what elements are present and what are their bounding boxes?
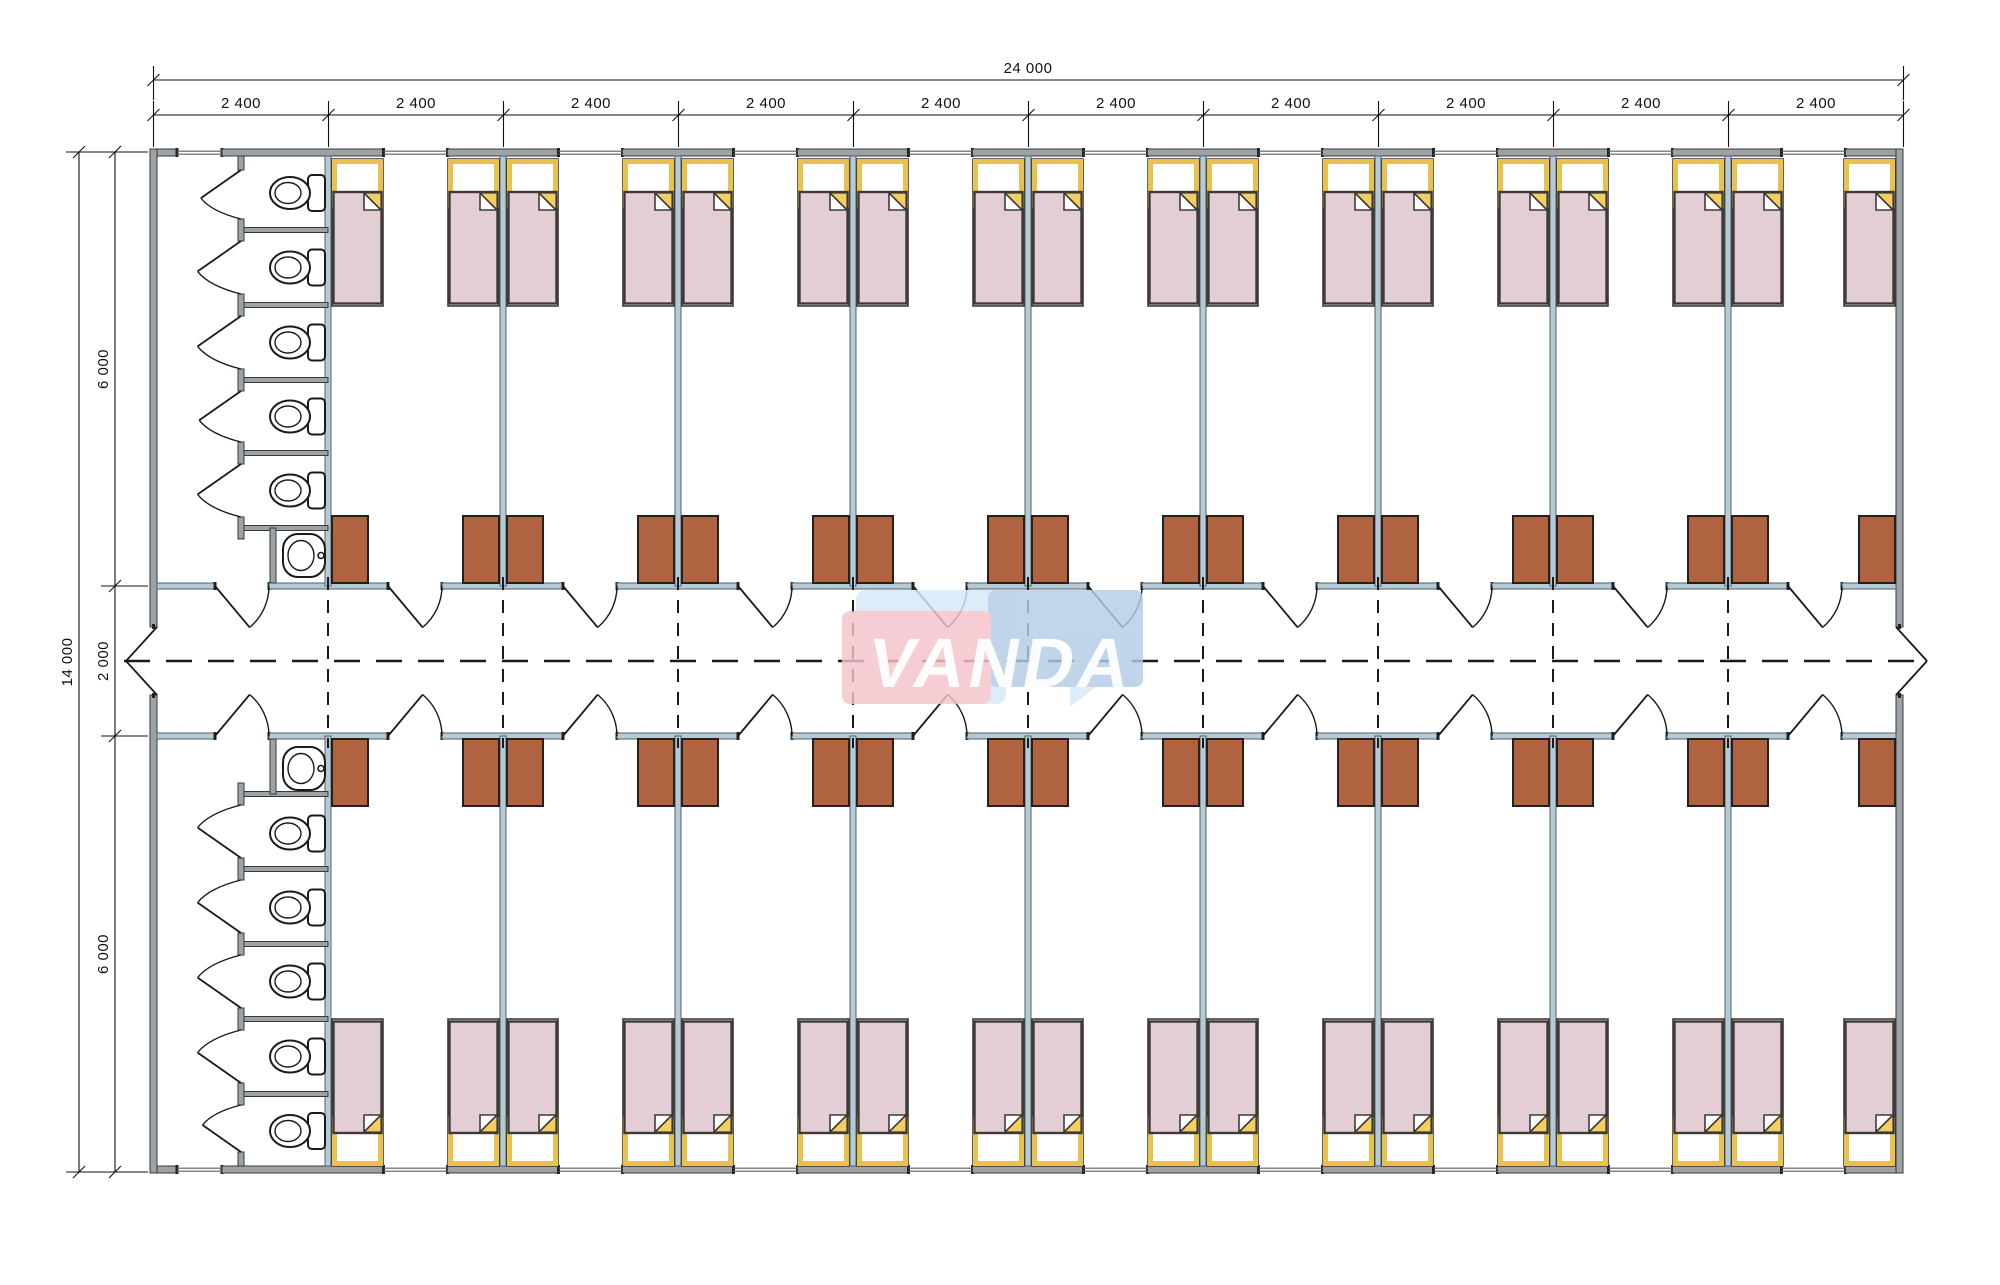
wardrobe [1688,516,1724,583]
wardrobe [463,516,499,583]
door-leaf [198,978,241,1008]
wardrobe [1859,516,1895,583]
wardrobe [1557,516,1593,583]
stall-wall [238,1083,244,1105]
door-leaf [198,464,241,494]
door-swing-arc [198,955,241,978]
door-jamb-cap [557,148,560,157]
door-leaf [198,1053,241,1083]
partition-wall [1550,736,1556,1166]
door-leaf [388,586,423,627]
bed-icon [857,1019,908,1166]
entrance-door-leaf [126,627,157,661]
wall [623,1166,734,1173]
door-jamb-cap [1257,148,1260,157]
wardrobe [1207,516,1243,583]
partition-wall [1550,156,1556,586]
stall-wall [240,526,328,531]
door-jamb-cap [1898,693,1901,698]
wardrobe [1859,739,1895,806]
entrance-door-leaf [1896,627,1927,661]
door-swing-arc [1648,695,1667,736]
wall [1498,1166,1609,1173]
toilet-icon [270,175,325,211]
bed-icon [507,159,558,306]
wall [1846,149,1904,156]
wardrobe [1382,739,1418,806]
wardrobe [682,516,718,583]
wall [798,149,909,156]
dimension-label: 2 400 [1271,95,1311,112]
stall-wall [238,219,244,241]
dimension-label: 2 400 [1796,95,1836,112]
door-jamb-cap [1082,148,1085,157]
toilet-bowl [270,1041,310,1073]
door-leaf [198,828,241,858]
door-swing-arc [198,346,241,369]
dormitory-floor-plan: VANDA24 0002 4002 4002 4002 4002 4002 40… [0,0,2000,1285]
partition-wall [1725,156,1731,586]
door-swing-arc [598,586,617,627]
bed-icon [1148,1019,1199,1166]
wall [157,733,215,739]
wardrobe [1338,739,1374,806]
wall [1673,1166,1782,1173]
door-leaf [215,586,250,627]
toilet-bowl [270,252,310,284]
toilet-bowl [270,966,310,998]
stall-wall [240,792,328,797]
dimension-label: 2 400 [396,95,436,112]
partition-wall [1200,736,1206,1166]
dimension-label: 2 400 [1446,95,1486,112]
door-swing-arc [198,805,241,828]
door-leaf [563,586,598,627]
door-jamb-cap [1607,148,1610,157]
door-swing-arc [1298,695,1317,736]
bed-icon [1673,159,1724,306]
door-swing-arc [203,1105,241,1125]
wardrobe [1382,516,1418,583]
wardrobe [1032,516,1068,583]
wardrobe [1513,739,1549,806]
entrance-door-leaf [126,661,157,695]
stall-wall [270,739,276,794]
bed-icon [448,1019,499,1166]
vanda-watermark: VANDA [842,590,1143,707]
wardrobe [988,739,1024,806]
wardrobe [1688,739,1724,806]
wardrobe [1732,516,1768,583]
door-jamb-cap [907,148,910,157]
door-jamb-cap [732,148,735,157]
sink-tap [318,553,324,559]
dimension-label: 2 400 [1096,95,1136,112]
door-swing-arc [198,1030,241,1053]
stall-wall [240,228,328,233]
wardrobe [813,516,849,583]
door-swing-arc [198,271,241,294]
bed-icon [1673,1019,1724,1166]
toilet-bowl [270,401,310,433]
toilet-bowl [270,892,310,924]
sink-icon [283,534,325,577]
stall-wall [238,156,244,170]
bed-icon [973,1019,1024,1166]
toilet-icon [270,890,325,926]
wardrobe [332,739,368,806]
door-swing-arc [773,586,792,627]
wardrobe [1513,516,1549,583]
door-jamb-cap [176,1165,179,1174]
door-swing-arc [1473,586,1492,627]
toilet-icon [270,964,325,1000]
bed-icon [798,159,849,306]
wardrobe [638,516,674,583]
door-leaf [203,1125,241,1152]
partition-wall [325,156,331,586]
wall [1673,149,1782,156]
door-swing-arc [1823,586,1842,627]
dimension-label: 2 400 [746,95,786,112]
wall [222,1166,384,1173]
door-swing-arc [423,695,442,736]
stall-wall [238,294,244,316]
stall-wall [240,867,328,872]
door-leaf [198,903,241,933]
stall-wall [240,451,328,456]
door-leaf [198,316,241,346]
door-swing-arc [250,586,269,627]
toilet-bowl [270,327,310,359]
dimension-label: 2 400 [1621,95,1661,112]
bed-icon [1732,1019,1783,1166]
bed-icon [798,1019,849,1166]
door-jamb-cap [176,148,179,157]
door-swing-arc [1298,586,1317,627]
door-leaf [738,586,773,627]
bed-icon [1557,159,1608,306]
door-swing-arc [198,880,241,903]
bed-icon [682,1019,733,1166]
toilet-bowl [270,818,310,850]
wall [973,149,1084,156]
bed-icon [1498,159,1549,306]
stall-wall [240,378,328,383]
wall [1323,1166,1434,1173]
wall [798,1166,909,1173]
door-leaf [563,695,598,736]
wardrobe [638,739,674,806]
door-jamb-cap [1780,148,1783,157]
door-swing-arc [201,198,241,219]
wardrobe [332,516,368,583]
door-leaf [215,695,250,736]
wall [1148,1166,1259,1173]
wall [1846,1166,1904,1173]
wall [222,149,384,156]
stall-wall [240,303,328,308]
door-swing-arc [1473,695,1492,736]
stall-wall [238,517,244,539]
door-leaf [388,695,423,736]
dimension-label: 24 000 [1004,60,1053,77]
door-leaf [1788,586,1823,627]
dimension-label: 6 000 [95,349,112,389]
bed-icon [1323,159,1374,306]
dimension-label: 2 000 [95,641,112,681]
bed-icon [332,159,383,306]
wall [448,1166,559,1173]
door-jamb-cap [152,693,155,698]
partition-wall [1025,736,1031,1166]
wardrobe [1207,739,1243,806]
door-leaf [1438,586,1473,627]
stall-wall [270,528,276,583]
wardrobe [813,739,849,806]
wardrobe [1163,739,1199,806]
wall [1323,149,1434,156]
wall [1896,695,1903,1173]
bed-icon [1382,159,1433,306]
bed-icon [1207,1019,1258,1166]
bed-icon [1498,1019,1549,1166]
door-leaf [199,391,241,420]
wall [973,1166,1084,1173]
door-leaf [1263,695,1298,736]
partition-wall [675,736,681,1166]
bed-icon [1557,1019,1608,1166]
toilet-bowl [270,1115,310,1147]
door-jamb-cap [1432,148,1435,157]
partition-wall [1375,736,1381,1166]
wall [150,695,157,1173]
wall [150,149,157,627]
stall-wall [238,783,244,805]
wardrobe [857,739,893,806]
wardrobe [1338,516,1374,583]
watermark-text: VANDA [863,623,1140,701]
wardrobe [507,516,543,583]
dimension-label: 2 400 [571,95,611,112]
stall-wall [238,933,244,955]
door-leaf [1788,695,1823,736]
wardrobe [1163,516,1199,583]
partition-wall [1025,156,1031,586]
wall [1498,149,1609,156]
stall-wall [238,858,244,880]
stall-wall [240,942,328,947]
door-swing-arc [598,695,617,736]
wardrobe [1032,739,1068,806]
wall [623,149,734,156]
bed-icon [448,159,499,306]
door-leaf [1613,695,1648,736]
bed-icon [623,159,674,306]
sink-tap [318,766,324,772]
bed-icon [1844,1019,1895,1166]
partition-wall [850,736,856,1166]
stall-wall [240,1017,328,1022]
toilet-icon [270,1039,325,1075]
partition-wall [1375,156,1381,586]
toilet-icon [270,250,325,286]
wall [1896,149,1903,627]
dimension-label: 2 400 [221,95,261,112]
wardrobe [988,516,1024,583]
door-swing-arc [198,494,241,517]
bed-icon [1032,1019,1083,1166]
wardrobe [682,739,718,806]
wall [157,583,215,589]
bed-icon [1844,159,1895,306]
sink-icon [283,747,325,790]
partition-wall [325,736,331,1166]
bed-icon [682,159,733,306]
wall [1148,149,1259,156]
dimension-label: 2 400 [921,95,961,112]
toilet-icon [270,325,325,361]
bed-icon [857,159,908,306]
partition-wall [1725,736,1731,1166]
bed-icon [507,1019,558,1166]
wardrobe [857,516,893,583]
partition-wall [850,156,856,586]
door-jamb-cap [382,148,385,157]
partition-wall [1200,156,1206,586]
toilet-bowl [270,475,310,507]
wall [448,149,559,156]
wardrobe [1557,739,1593,806]
partition-wall [500,156,506,586]
door-swing-arc [250,695,269,736]
entrance-door-leaf [1896,661,1927,695]
door-leaf [738,695,773,736]
stall-wall [240,1092,328,1097]
toilet-icon [270,399,325,435]
door-jamb-cap [1898,624,1901,629]
partition-wall [500,736,506,1166]
door-swing-arc [199,420,241,442]
stall-wall [238,1008,244,1030]
floor-plan-page: VANDA24 0002 4002 4002 4002 4002 4002 40… [0,0,2000,1285]
wardrobe [507,739,543,806]
door-swing-arc [1823,695,1842,736]
door-leaf [1613,586,1648,627]
door-jamb-cap [152,624,155,629]
bed-icon [1732,159,1783,306]
bed-icon [1032,159,1083,306]
bed-icon [332,1019,383,1166]
door-swing-arc [423,586,442,627]
wardrobe [463,739,499,806]
dimension-label: 6 000 [95,934,112,974]
door-leaf [201,170,241,198]
toilet-icon [270,1113,325,1149]
wardrobe [1732,739,1768,806]
door-leaf [1263,586,1298,627]
bed-icon [623,1019,674,1166]
toilet-icon [270,473,325,509]
stall-wall [238,369,244,391]
stall-wall [238,442,244,464]
bed-icon [1148,159,1199,306]
toilet-icon [270,816,325,852]
bed-icon [1323,1019,1374,1166]
toilet-bowl [270,177,310,209]
door-leaf [1438,695,1473,736]
door-swing-arc [1648,586,1667,627]
stall-wall [238,1152,244,1166]
bed-icon [973,159,1024,306]
door-swing-arc [773,695,792,736]
partition-wall [675,156,681,586]
door-leaf [198,241,241,271]
bed-icon [1207,159,1258,306]
bed-icon [1382,1019,1433,1166]
dimension-label: 14 000 [59,638,76,687]
